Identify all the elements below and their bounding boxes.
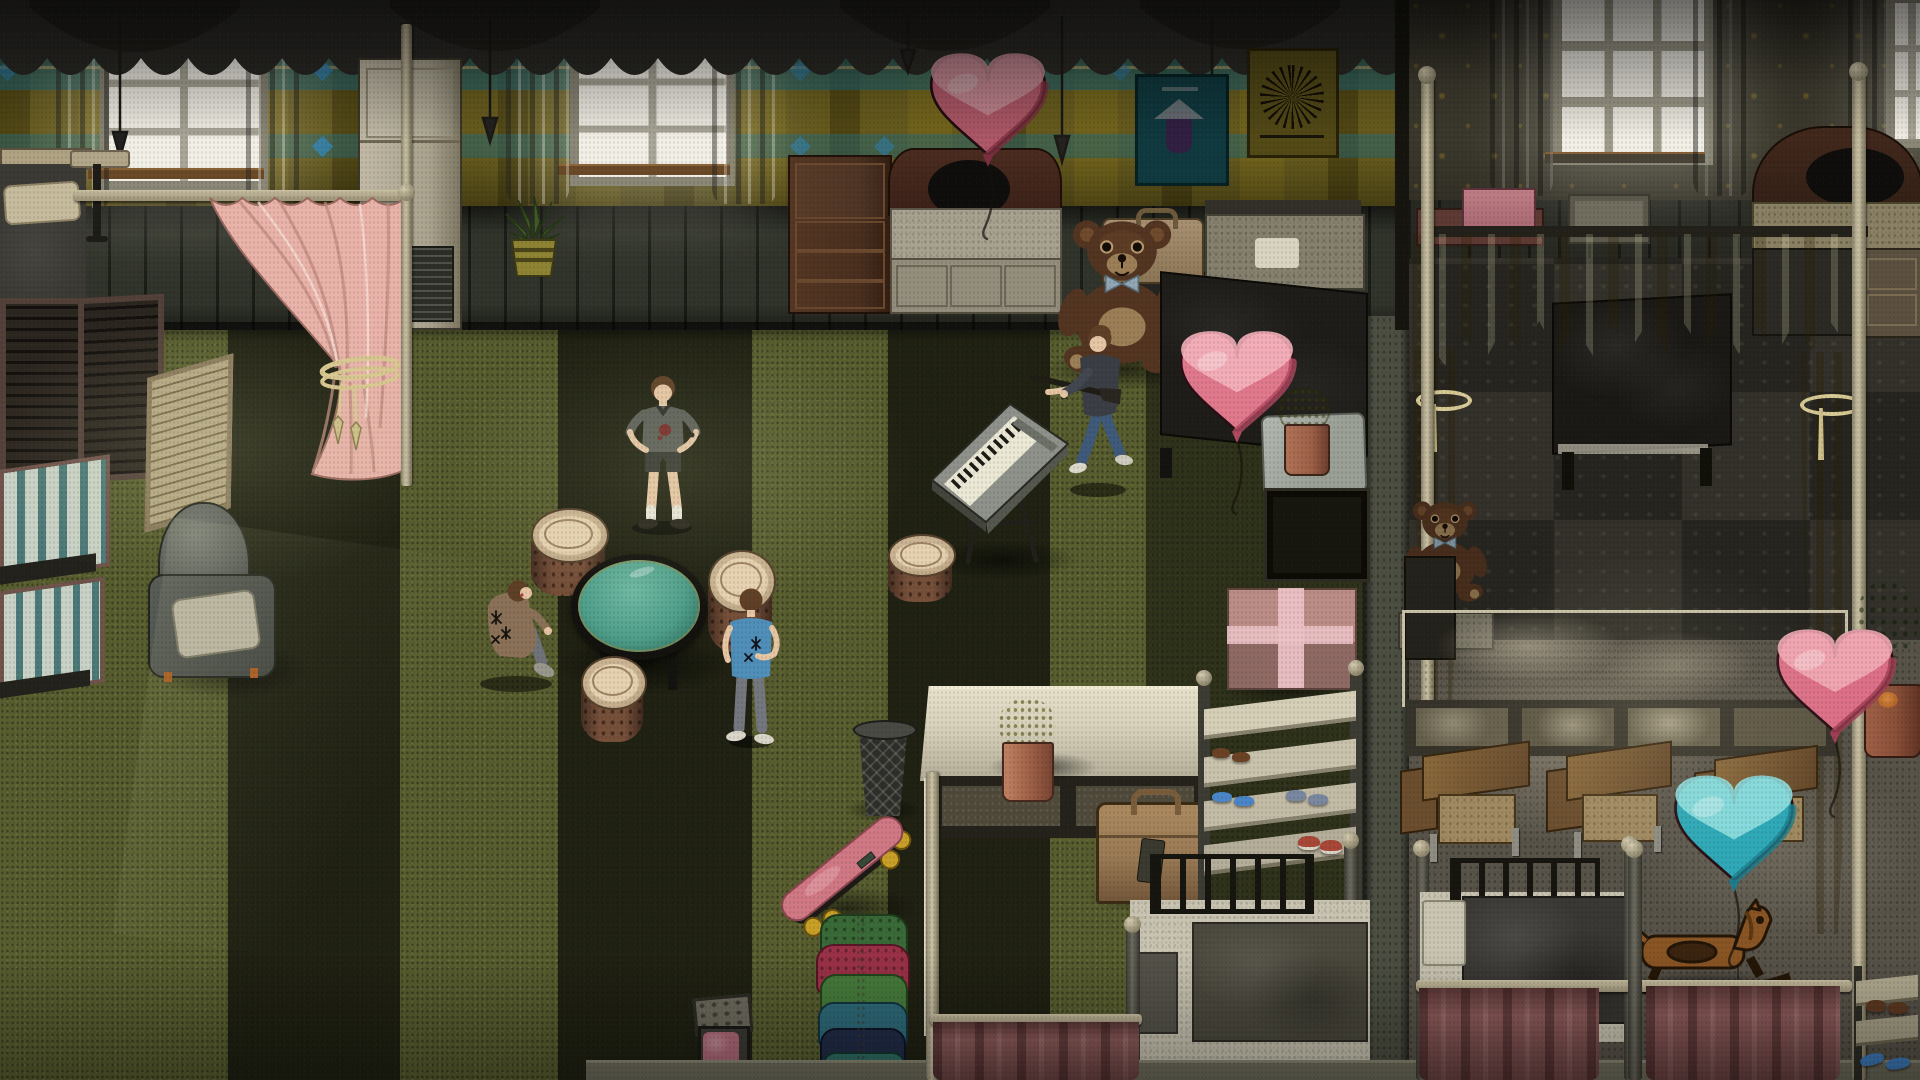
poster-flute xyxy=(1260,135,1324,138)
mauve-privacy-curtain[interactable] xyxy=(933,1022,1139,1080)
table-leg xyxy=(668,650,677,690)
drawer[interactable] xyxy=(1004,265,1056,307)
desk-top xyxy=(1566,741,1672,802)
desk-front xyxy=(1438,794,1516,844)
folded-towel xyxy=(1255,238,1299,268)
poster-nest-drawing xyxy=(1260,65,1324,129)
suitcase-handle xyxy=(1131,789,1181,815)
shoe xyxy=(1866,1000,1886,1012)
drawer[interactable] xyxy=(795,281,885,309)
tree-stump-stool[interactable] xyxy=(581,656,643,742)
sandal xyxy=(1308,794,1328,805)
grey-curtain[interactable] xyxy=(1693,0,1751,196)
folding-screen-panel[interactable] xyxy=(0,298,84,480)
teen-blue-shirt[interactable] xyxy=(718,584,784,750)
post-cap xyxy=(1124,916,1141,933)
sandal xyxy=(1286,790,1306,801)
armchair-foot xyxy=(164,672,172,682)
drawer[interactable] xyxy=(1867,258,1917,290)
slipper xyxy=(1212,748,1230,758)
post-cap xyxy=(1348,660,1364,676)
curtain-pole xyxy=(401,24,412,486)
flip-flop xyxy=(1859,1051,1885,1067)
desk-front xyxy=(1582,794,1658,842)
post-cap xyxy=(1196,670,1212,686)
teal-poster xyxy=(1135,74,1229,186)
pillow xyxy=(3,180,82,225)
pink-tieback-curtain[interactable] xyxy=(200,188,415,488)
poster-figure-hat xyxy=(1154,99,1204,119)
post-cap xyxy=(1413,840,1430,857)
slipper xyxy=(1232,752,1250,762)
flip-flop xyxy=(1234,796,1254,806)
side-table-foot xyxy=(86,236,108,242)
drawer[interactable] xyxy=(1867,294,1917,326)
bed-blanket xyxy=(1192,922,1368,1042)
shoe-rack[interactable] xyxy=(1854,966,1920,1080)
pole-joint xyxy=(398,184,415,201)
rack-shelf xyxy=(1856,975,1918,1007)
bed-leg xyxy=(1562,452,1574,490)
teal-heart-balloon[interactable] xyxy=(1666,766,1802,970)
side-table-leg xyxy=(93,164,101,238)
drawer[interactable] xyxy=(896,265,948,307)
dresser[interactable] xyxy=(1860,248,1920,338)
pillow xyxy=(1422,900,1466,966)
counter-panel xyxy=(1522,708,1614,746)
bed-leg xyxy=(1700,448,1712,486)
clothes-rack[interactable] xyxy=(816,900,908,1080)
rack-pole xyxy=(856,900,866,1080)
gift-ribbon-h xyxy=(1227,626,1353,644)
drawer[interactable] xyxy=(950,265,1002,307)
drawer[interactable] xyxy=(795,163,885,219)
metal-bed[interactable] xyxy=(1126,838,1372,1080)
pole-finial xyxy=(1418,66,1436,84)
rack-shelf xyxy=(1856,1015,1918,1047)
poster-caption xyxy=(1162,87,1198,91)
window[interactable] xyxy=(1553,0,1713,165)
desk-top xyxy=(1422,740,1530,801)
rack-shelf xyxy=(1204,691,1356,740)
grey-curtain[interactable] xyxy=(1490,0,1554,196)
man-with-rifle[interactable] xyxy=(1036,320,1166,498)
bed-sheet-edge xyxy=(1558,444,1708,454)
canopy-pole xyxy=(1852,70,1866,1080)
rack-shelf xyxy=(1204,739,1356,788)
mauve-privacy-curtain[interactable] xyxy=(1419,988,1599,1080)
bed-headboard-bars xyxy=(1150,854,1314,914)
round-glass-table[interactable] xyxy=(571,554,707,660)
armchair-foot xyxy=(250,668,258,678)
aloe-potted-plant[interactable] xyxy=(498,192,570,278)
game-scene xyxy=(0,0,1920,1080)
shoe xyxy=(1888,1002,1908,1014)
wall-seam xyxy=(1395,0,1409,330)
chest-of-drawers[interactable] xyxy=(788,155,892,314)
yellow-poster xyxy=(1247,48,1339,158)
trash-can-rim xyxy=(853,720,917,740)
counter-panel xyxy=(1416,708,1508,746)
post-cap xyxy=(1342,832,1359,849)
mauve-privacy-curtain[interactable] xyxy=(1646,986,1840,1080)
drawer[interactable] xyxy=(795,221,885,251)
pink-heart-balloon[interactable] xyxy=(1172,322,1302,517)
pink-heart-balloon[interactable] xyxy=(922,44,1054,242)
teen-crouching[interactable] xyxy=(472,578,568,694)
rack-shelf xyxy=(1204,783,1356,832)
counter-panel xyxy=(1628,708,1720,746)
armchair-cushion xyxy=(170,588,262,659)
terracotta-pot xyxy=(1002,742,1054,802)
armchair[interactable] xyxy=(148,502,278,692)
window-sill xyxy=(1545,152,1705,163)
desk-leg xyxy=(1654,826,1661,852)
flip-flop xyxy=(1212,792,1232,802)
window-partial[interactable] xyxy=(1886,0,1920,148)
curtain-post xyxy=(1628,846,1642,1080)
teen-standing[interactable] xyxy=(616,372,710,536)
flip-flop xyxy=(1885,1056,1911,1071)
pole-finial xyxy=(1849,62,1868,81)
drawer[interactable] xyxy=(795,251,885,281)
tree-stump-stool[interactable] xyxy=(888,534,952,602)
white-dresser-drawers[interactable] xyxy=(890,258,1062,314)
post-cap xyxy=(1625,840,1643,858)
